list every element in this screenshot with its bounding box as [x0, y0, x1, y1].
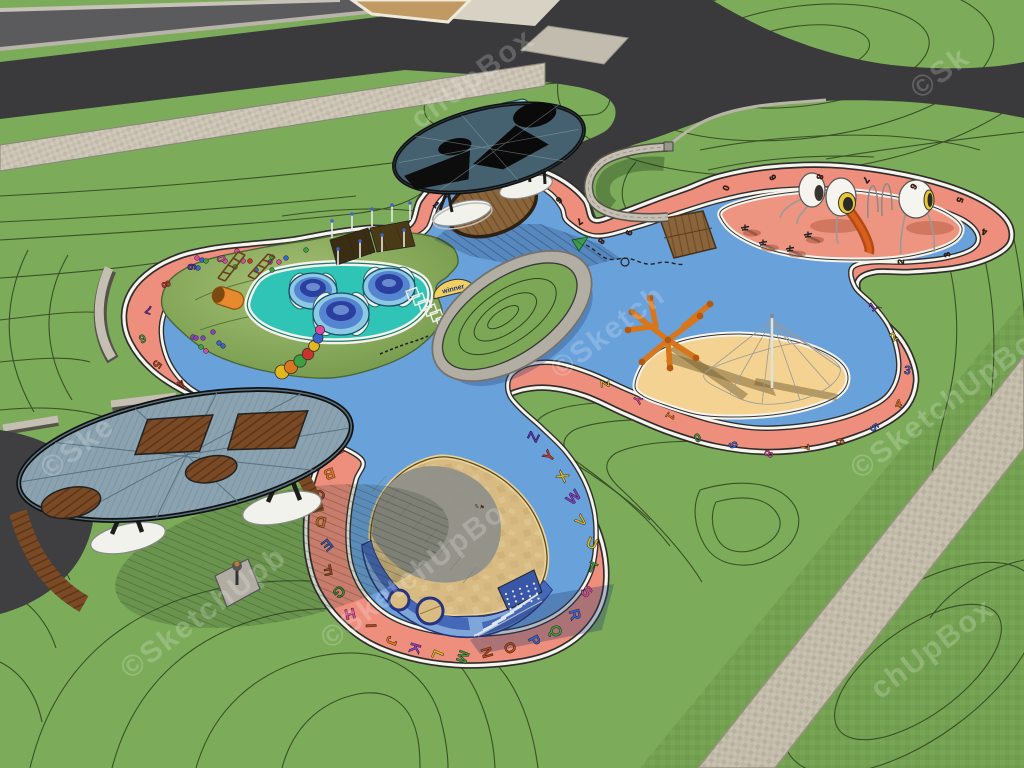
svg-text:Z: Z: [598, 380, 612, 388]
svg-text:2: 2: [896, 259, 906, 265]
svg-text:9: 9: [185, 263, 199, 270]
